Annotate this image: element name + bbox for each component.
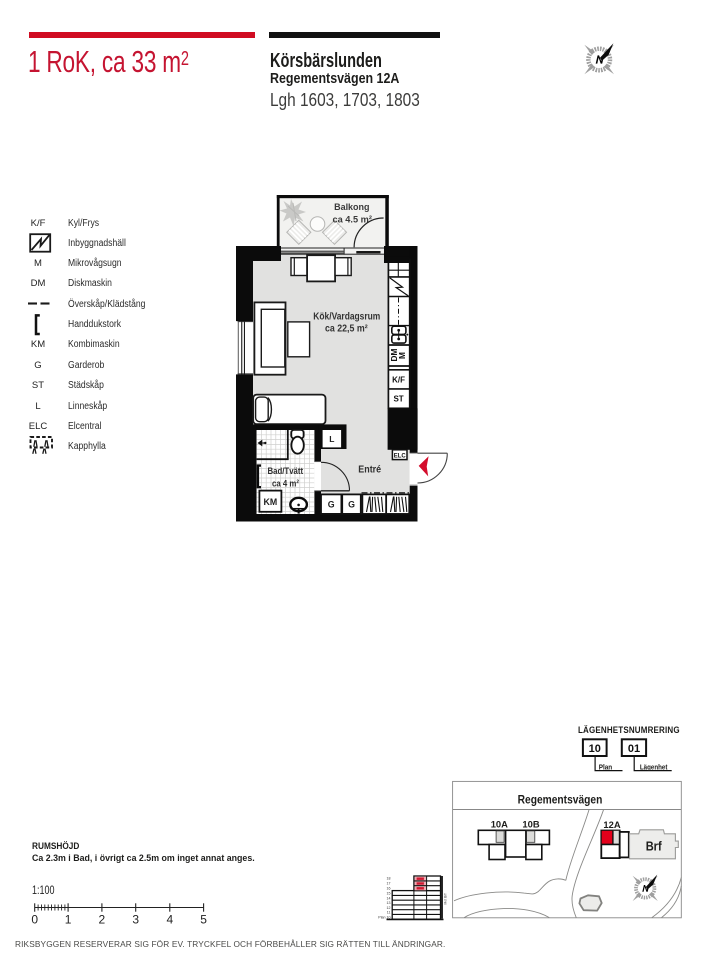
svg-text:17: 17: [387, 882, 391, 886]
svg-text:Plan 10: Plan 10: [378, 915, 390, 919]
svg-text:M: M: [397, 352, 407, 359]
svg-text:Mot Brf: Mot Brf: [444, 893, 448, 904]
svg-text:Plan: Plan: [599, 762, 613, 771]
svg-text:15: 15: [387, 892, 391, 896]
svg-text:1: 1: [65, 912, 72, 926]
svg-text:G: G: [348, 500, 355, 510]
svg-text:12: 12: [387, 906, 391, 910]
svg-text:10A: 10A: [491, 819, 508, 830]
svg-text:10: 10: [589, 743, 601, 755]
svg-text:14: 14: [387, 896, 391, 900]
svg-text:3: 3: [132, 912, 139, 926]
svg-text:0: 0: [31, 912, 38, 926]
svg-text:KM: KM: [264, 497, 278, 507]
svg-text:01: 01: [628, 743, 640, 755]
svg-text:13: 13: [387, 901, 391, 905]
svg-text:Lägenhet: Lägenhet: [640, 762, 668, 771]
svg-text:ELC: ELC: [394, 453, 407, 459]
svg-text:Kök/Vardagsrum: Kök/Vardagsrum: [313, 311, 380, 322]
svg-text:12A: 12A: [603, 819, 620, 830]
svg-text:5: 5: [200, 912, 207, 926]
svg-text:16: 16: [387, 886, 391, 890]
svg-text:ca 22,5 m²: ca 22,5 m²: [325, 323, 368, 334]
svg-text:ST: ST: [393, 395, 403, 404]
svg-text:Entré: Entré: [358, 463, 381, 475]
svg-text:Brf: Brf: [646, 840, 663, 854]
svg-text:10B: 10B: [522, 819, 539, 830]
svg-text:Bad/Tvätt: Bad/Tvätt: [267, 466, 303, 476]
svg-text:18: 18: [387, 877, 391, 881]
svg-text:ca 4.5 m²: ca 4.5 m²: [333, 214, 372, 224]
svg-text:Regementsvägen: Regementsvägen: [518, 793, 603, 807]
svg-text:G: G: [328, 500, 335, 510]
svg-text:11: 11: [387, 911, 391, 915]
svg-text:Balkong: Balkong: [334, 202, 369, 212]
svg-text:4: 4: [166, 912, 173, 926]
svg-text:L: L: [329, 434, 334, 444]
svg-text:2: 2: [99, 912, 106, 926]
svg-text:ca 4 m²: ca 4 m²: [272, 478, 299, 488]
svg-text:K/F: K/F: [392, 375, 405, 384]
